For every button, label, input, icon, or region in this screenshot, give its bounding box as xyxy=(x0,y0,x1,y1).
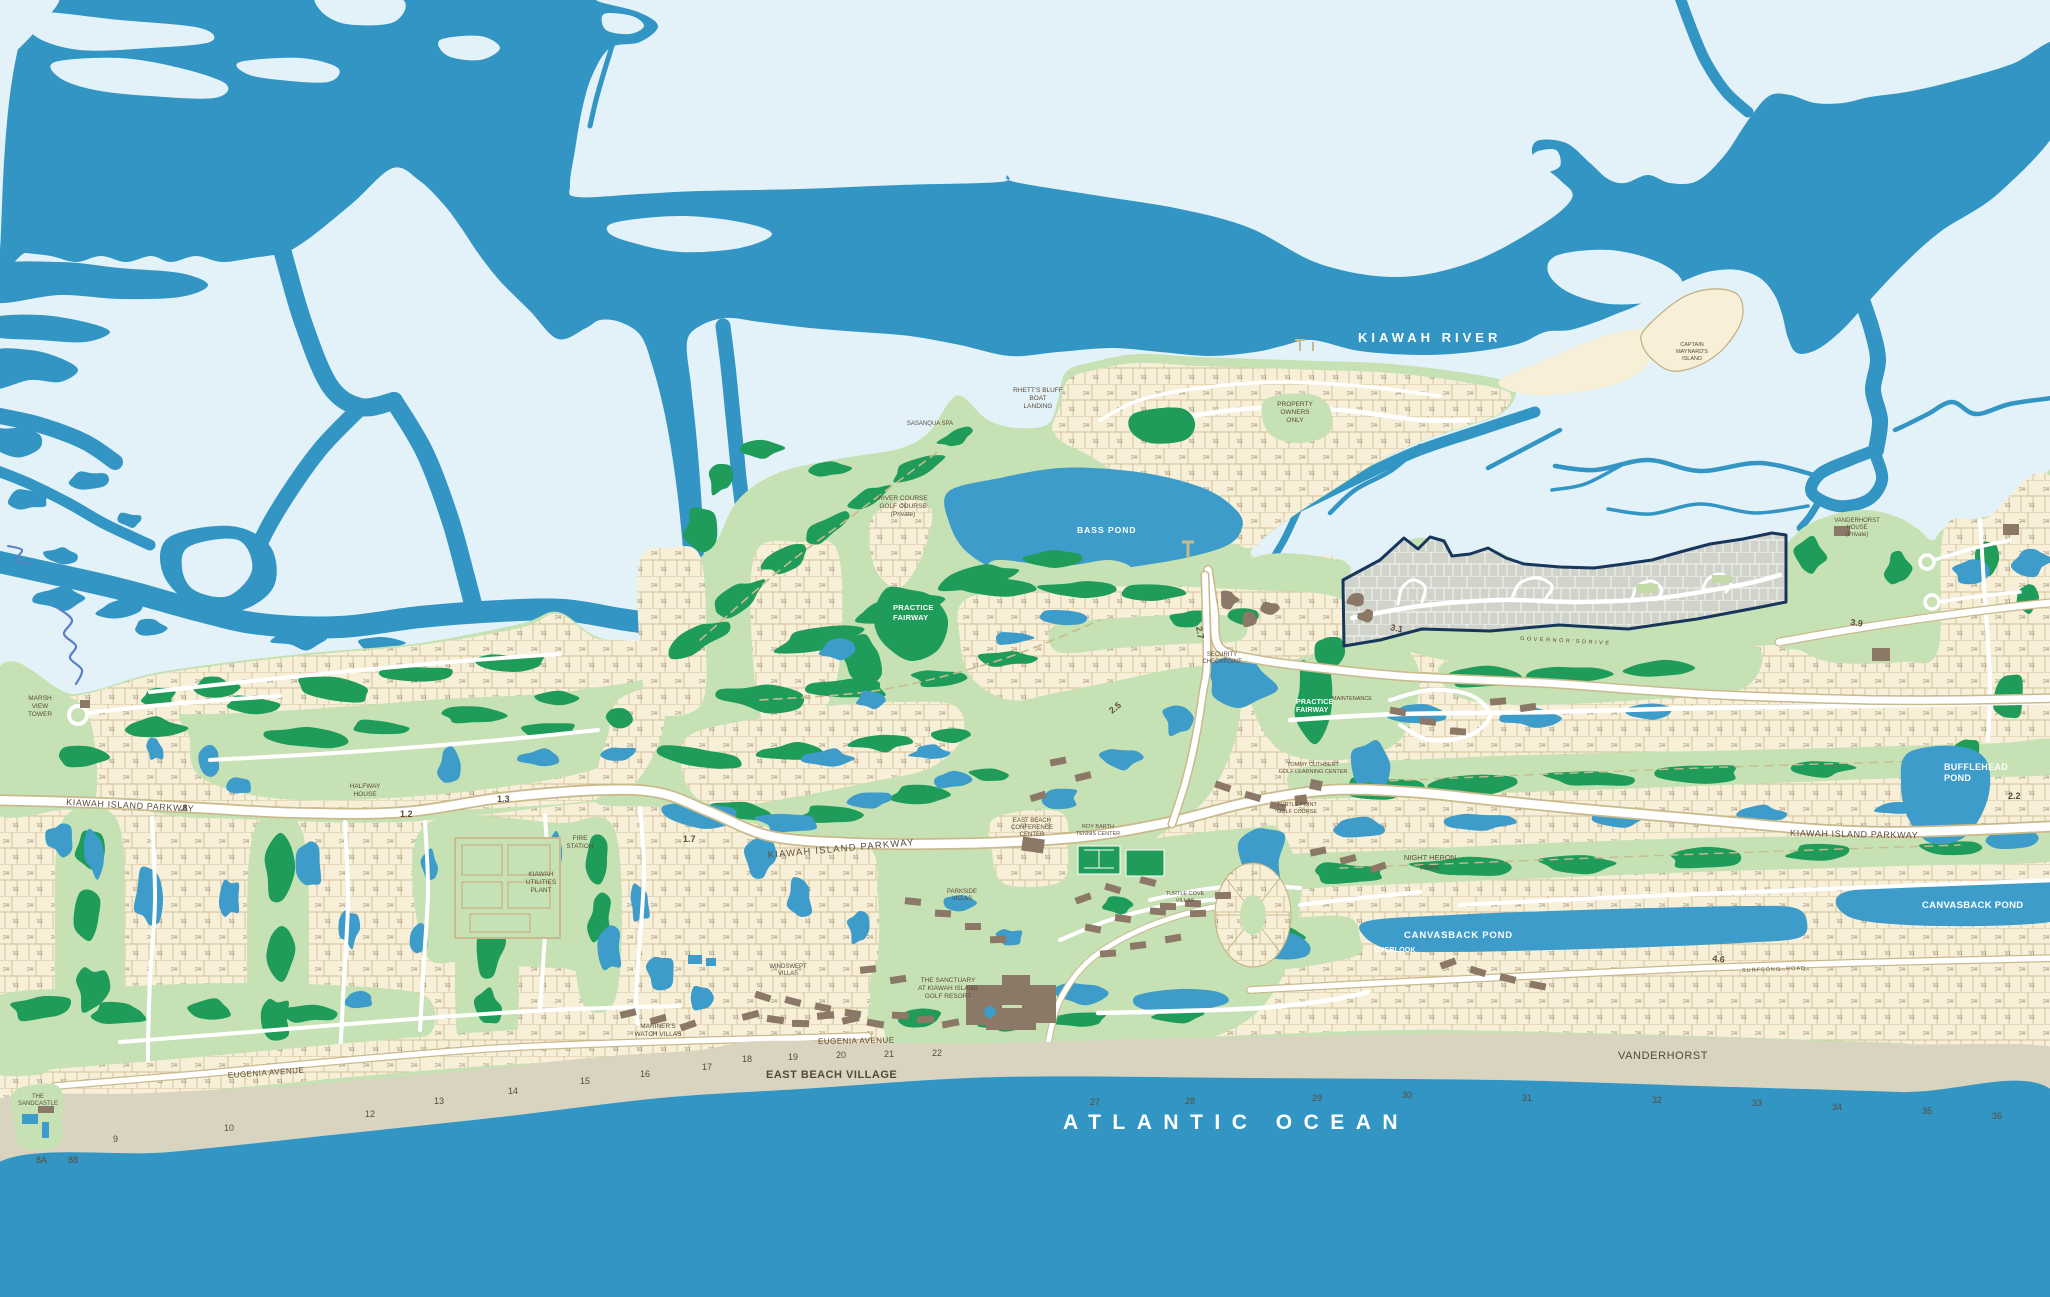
svg-text:MAYNARD'S: MAYNARD'S xyxy=(1676,349,1708,355)
svg-text:GOLF LEARNING CENTER: GOLF LEARNING CENTER xyxy=(1279,769,1348,775)
svg-text:VILLAS: VILLAS xyxy=(1176,898,1195,904)
svg-text:FAIRWAY: FAIRWAY xyxy=(1296,707,1329,714)
svg-text:14: 14 xyxy=(508,1086,518,1096)
svg-text:FIRE: FIRE xyxy=(573,835,588,842)
svg-text:1.2: 1.2 xyxy=(400,809,413,819)
svg-text:1.7: 1.7 xyxy=(683,834,696,844)
svg-text:PRACTICE: PRACTICE xyxy=(893,603,934,612)
svg-text:CANVASBACK POND: CANVASBACK POND xyxy=(1922,900,2023,911)
svg-text:.8: .8 xyxy=(180,803,188,813)
svg-text:SANDCASTLE: SANDCASTLE xyxy=(18,1101,58,1107)
svg-text:3.9: 3.9 xyxy=(1850,617,1864,629)
svg-text:OWNERS: OWNERS xyxy=(1280,409,1310,416)
svg-text:12: 12 xyxy=(365,1109,375,1119)
svg-text:OVERLOOK: OVERLOOK xyxy=(1374,947,1416,954)
svg-text:RHETT'S BLUFF: RHETT'S BLUFF xyxy=(1013,387,1063,394)
svg-text:28: 28 xyxy=(1185,1096,1195,1106)
svg-text:4.6: 4.6 xyxy=(1712,953,1726,965)
svg-text:GOLF COURSE: GOLF COURSE xyxy=(879,503,927,510)
svg-text:CHECKPOINT: CHECKPOINT xyxy=(1202,659,1242,665)
svg-text:NIGHT HERON: NIGHT HERON xyxy=(1404,853,1456,862)
svg-text:CENTER: CENTER xyxy=(1020,832,1045,838)
svg-text:SECURITY: SECURITY xyxy=(1207,652,1237,658)
svg-text:RIVER COURSE: RIVER COURSE xyxy=(878,495,928,502)
svg-text:PLANT: PLANT xyxy=(531,887,552,894)
svg-text:9: 9 xyxy=(113,1134,118,1144)
svg-text:35: 35 xyxy=(1922,1106,1932,1116)
svg-text:29: 29 xyxy=(1312,1093,1322,1103)
svg-text:CAPTAIN: CAPTAIN xyxy=(1680,342,1703,348)
svg-text:CONFERENCE: CONFERENCE xyxy=(1011,825,1053,831)
svg-text:GOLF RESORT: GOLF RESORT xyxy=(925,993,972,1000)
svg-text:1.3: 1.3 xyxy=(497,794,510,804)
svg-text:ONLY: ONLY xyxy=(1286,417,1304,424)
svg-text:MARSH: MARSH xyxy=(28,695,52,702)
svg-text:BUFFLEHEAD: BUFFLEHEAD xyxy=(1944,762,2008,772)
svg-text:TOWER: TOWER xyxy=(28,711,52,718)
svg-text:VANDERHORST: VANDERHORST xyxy=(1618,1050,1708,1062)
svg-text:HOUSE: HOUSE xyxy=(353,791,377,798)
svg-text:27: 27 xyxy=(1090,1097,1100,1107)
svg-text:LANDING: LANDING xyxy=(1024,403,1053,410)
svg-text:VANDERHORST: VANDERHORST xyxy=(1834,518,1880,524)
svg-text:VILLAS: VILLAS xyxy=(952,896,972,902)
svg-text:88: 88 xyxy=(68,1155,78,1165)
svg-text:2.7: 2.7 xyxy=(1194,626,1206,640)
svg-text:20: 20 xyxy=(836,1050,846,1060)
svg-text:POND: POND xyxy=(1944,773,1971,783)
svg-text:VIEW: VIEW xyxy=(32,703,49,710)
svg-text:WATCH VILLAS: WATCH VILLAS xyxy=(635,1031,683,1038)
svg-text:GOLF COURSE: GOLF COURSE xyxy=(1277,809,1317,815)
svg-text:33: 33 xyxy=(1752,1098,1762,1108)
svg-text:VILLAS: VILLAS xyxy=(778,971,798,977)
svg-text:BOAT: BOAT xyxy=(1029,395,1046,402)
svg-text:TENNIS CENTER: TENNIS CENTER xyxy=(1076,831,1120,837)
svg-text:MARINER'S: MARINER'S xyxy=(640,1023,676,1030)
svg-text:(Private): (Private) xyxy=(891,511,916,518)
svg-text:16: 16 xyxy=(640,1069,650,1079)
svg-text:21: 21 xyxy=(884,1049,894,1059)
svg-text:17: 17 xyxy=(702,1062,712,1072)
svg-text:AT KIAWAH ISLAND: AT KIAWAH ISLAND xyxy=(918,985,978,992)
svg-text:PARK: PARK xyxy=(1420,863,1440,872)
svg-text:FAIRWAY: FAIRWAY xyxy=(893,613,928,622)
svg-text:2.2: 2.2 xyxy=(2008,791,2021,801)
svg-text:34: 34 xyxy=(1832,1102,1842,1112)
svg-text:36: 36 xyxy=(1992,1111,2002,1121)
svg-text:8A: 8A xyxy=(36,1155,47,1165)
svg-text:PRACTICE: PRACTICE xyxy=(1296,699,1334,706)
svg-text:18: 18 xyxy=(742,1054,752,1064)
svg-text:THE SANCTUARY: THE SANCTUARY xyxy=(921,977,976,984)
svg-text:(Private): (Private) xyxy=(1846,532,1869,538)
svg-text:WINDSWEPT: WINDSWEPT xyxy=(769,964,807,970)
svg-text:EAST BEACH VILLAGE: EAST BEACH VILLAGE xyxy=(766,1069,897,1081)
svg-text:30: 30 xyxy=(1402,1090,1412,1100)
svg-text:STATION: STATION xyxy=(566,843,594,850)
svg-text:TURTLE POINT: TURTLE POINT xyxy=(1277,802,1317,808)
svg-text:10: 10 xyxy=(224,1123,234,1133)
svg-text:PROPERTY: PROPERTY xyxy=(1277,401,1313,408)
svg-text:ISLAND: ISLAND xyxy=(1682,356,1702,362)
svg-text:KIAWAH RIVER: KIAWAH RIVER xyxy=(1358,330,1501,345)
svg-text:THE: THE xyxy=(32,1094,44,1100)
svg-text:TOMMY CUTHBERT: TOMMY CUTHBERT xyxy=(1287,762,1339,768)
svg-text:ROY BARTH: ROY BARTH xyxy=(1082,824,1114,830)
svg-text:CANVASBACK POND: CANVASBACK POND xyxy=(1404,930,1513,941)
svg-text:HALFWAY: HALFWAY xyxy=(350,783,381,790)
svg-text:ATLANTIC OCEAN: ATLANTIC OCEAN xyxy=(1063,1111,1409,1134)
svg-text:HOUSE: HOUSE xyxy=(1846,525,1867,531)
svg-text:BASS POND: BASS POND xyxy=(1077,525,1137,535)
svg-text:EUGENIA AVENUE: EUGENIA AVENUE xyxy=(818,1036,895,1046)
svg-text:31: 31 xyxy=(1522,1093,1532,1103)
svg-text:TURTLE COVE: TURTLE COVE xyxy=(1166,891,1205,897)
svg-text:PARKSIDE: PARKSIDE xyxy=(947,889,977,895)
svg-text:MAINTENANCE: MAINTENANCE xyxy=(1332,696,1372,702)
svg-text:SASANQUA SPA: SASANQUA SPA xyxy=(907,421,953,427)
svg-text:22: 22 xyxy=(932,1048,942,1058)
svg-text:UTILITIES: UTILITIES xyxy=(526,879,557,886)
svg-text:19: 19 xyxy=(788,1052,798,1062)
svg-text:15: 15 xyxy=(580,1076,590,1086)
svg-text:EAST BEACH: EAST BEACH xyxy=(1013,818,1051,824)
svg-text:KIAWAH: KIAWAH xyxy=(528,871,553,878)
svg-text:32: 32 xyxy=(1652,1095,1662,1105)
svg-text:13: 13 xyxy=(434,1096,444,1106)
